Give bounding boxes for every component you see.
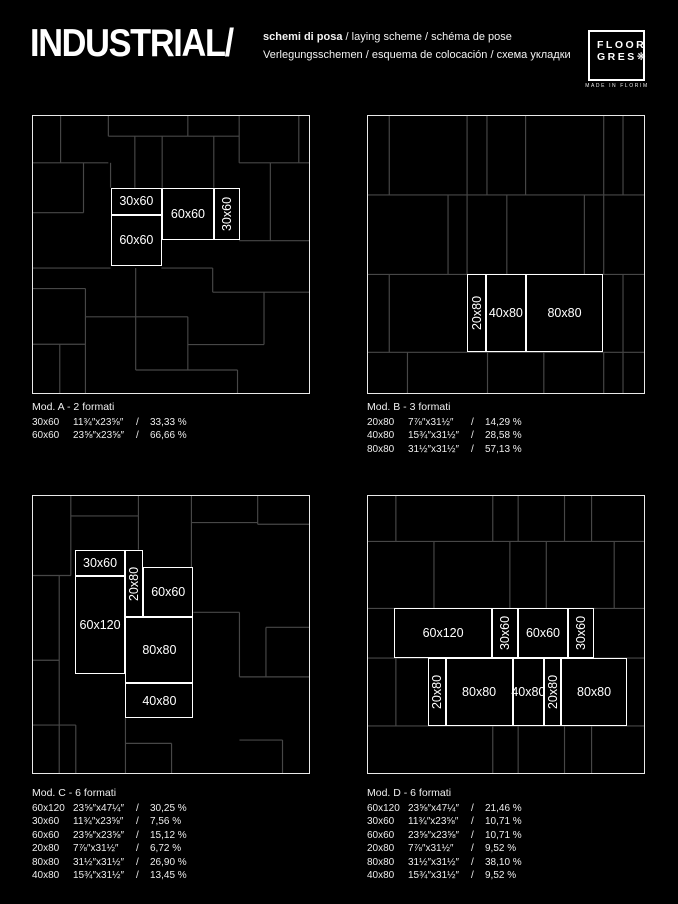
tile-label: 80x80 (462, 685, 496, 699)
format-size: 30x60 (367, 815, 408, 828)
logo-line2: GRES❋ (597, 52, 643, 64)
format-pct: 26,90 % (150, 856, 310, 869)
format-pct: 30,25 % (150, 802, 310, 815)
format-inches: 23⅝″x23⅝″ (73, 829, 136, 842)
tile-40x80: 40x80 (486, 274, 525, 352)
laying-scheme-diagram-d: 60x12030x6060x6030x6020x8080x8040x8020x8… (367, 495, 645, 774)
tile-20x80: 20x80 (428, 658, 445, 726)
format-row: 40x8015¾″x31½″/9,52 % (367, 869, 645, 882)
legend-mod-a: Mod. A - 2 formati30x6011¾″x23⅝″/33,33 %… (32, 401, 310, 443)
format-separator: / (136, 815, 150, 828)
page: INDUSTRIAL/ schemi di posa / laying sche… (0, 0, 678, 904)
format-separator: / (471, 802, 485, 815)
format-row: 80x8031½″x31½″/57,13 % (367, 443, 645, 456)
tile-label: 60x60 (151, 585, 185, 599)
format-size: 20x80 (367, 416, 408, 429)
tile-20x80: 20x80 (125, 550, 143, 618)
format-inches: 15¾″x31½″ (408, 869, 471, 882)
format-separator: / (136, 802, 150, 815)
format-pct: 38,10 % (485, 856, 645, 869)
format-row: 20x807⅞″x31½″/14,29 % (367, 416, 645, 429)
tile-20x80: 20x80 (467, 274, 486, 352)
subtitle: schemi di posa / laying scheme / schéma … (263, 28, 571, 64)
format-size: 80x80 (367, 856, 408, 869)
format-size: 40x80 (367, 869, 408, 882)
format-separator: / (136, 829, 150, 842)
format-size: 60x60 (32, 829, 73, 842)
format-row: 30x6011¾″x23⅝″/33,33 % (32, 416, 310, 429)
format-size: 40x80 (367, 429, 408, 442)
tile-label: 30x60 (220, 197, 234, 231)
legend-mod-b: Mod. B - 3 formati20x807⅞″x31½″/14,29 %4… (367, 401, 645, 456)
tile-label: 20x80 (546, 675, 560, 709)
format-pct: 33,33 % (150, 416, 310, 429)
format-inches: 31½″x31½″ (73, 856, 136, 869)
made-in-florim-label: MADE IN FLORIM (585, 83, 649, 89)
format-inches: 7⅞″x31½″ (408, 842, 471, 855)
format-row: 30x6011¾″x23⅝″/10,71 % (367, 815, 645, 828)
format-pct: 10,71 % (485, 829, 645, 842)
page-title: INDUSTRIAL/ (30, 22, 233, 66)
tile-40x80: 40x80 (125, 683, 193, 718)
tile-label: 80x80 (547, 306, 581, 320)
tile-80x80: 80x80 (446, 658, 513, 726)
format-inches: 23⅝″x23⅝″ (408, 829, 471, 842)
tile-label: 80x80 (142, 643, 176, 657)
format-inches: 15¾″x31½″ (408, 429, 471, 442)
tile-60x60: 60x60 (518, 608, 568, 658)
tile-label: 30x60 (574, 616, 588, 650)
format-separator: / (471, 829, 485, 842)
format-pct: 7,56 % (150, 815, 310, 828)
format-separator: / (136, 416, 150, 429)
format-pct: 9,52 % (485, 842, 645, 855)
format-pct: 9,52 % (485, 869, 645, 882)
tile-30x60: 30x60 (492, 608, 518, 658)
format-separator: / (136, 842, 150, 855)
tile-label: 60x60 (171, 207, 205, 221)
legend-title: Mod. C - 6 formati (32, 787, 310, 799)
format-size: 30x60 (32, 815, 73, 828)
format-size: 60x120 (32, 802, 73, 815)
logo-line1: FLOOR (597, 40, 643, 52)
panel-mod-b: 20x8040x8080x80Mod. B - 3 formati20x807⅞… (367, 115, 645, 456)
laying-scheme-diagram-a: 30x6060x6060x6030x60 (32, 115, 310, 394)
format-separator: / (136, 869, 150, 882)
floorgres-logo: FLOOR GRES❋ (588, 30, 645, 81)
format-size: 20x80 (32, 842, 73, 855)
format-inches: 31½″x31½″ (408, 443, 471, 456)
format-row: 80x8031½″x31½″/38,10 % (367, 856, 645, 869)
tile-label: 20x80 (430, 675, 444, 709)
tile-label: 40x80 (511, 685, 545, 699)
laying-scheme-diagram-c: 30x6020x8060x6060x12080x8040x80 (32, 495, 310, 774)
tile-label: 40x80 (489, 306, 523, 320)
format-row: 40x8015¾″x31½″/28,58 % (367, 429, 645, 442)
tile-40x80: 40x80 (513, 658, 544, 726)
format-inches: 7⅞″x31½″ (73, 842, 136, 855)
format-row: 40x8015¾″x31½″/13,45 % (32, 869, 310, 882)
format-inches: 15¾″x31½″ (73, 869, 136, 882)
tile-80x80: 80x80 (125, 617, 193, 683)
tile-80x80: 80x80 (526, 274, 604, 352)
faint-tiling-grid (33, 116, 309, 393)
format-inches: 23⅝″x47¼″ (73, 802, 136, 815)
format-row: 60x6023⅝″x23⅝″/66,66 % (32, 429, 310, 442)
format-inches: 11¾″x23⅝″ (408, 815, 471, 828)
format-row: 60x6023⅝″x23⅝″/10,71 % (367, 829, 645, 842)
format-size: 40x80 (32, 869, 73, 882)
format-row: 60x12023⅝″x47¼″/21,46 % (367, 802, 645, 815)
tile-label: 40x80 (142, 694, 176, 708)
tile-label: 60x120 (423, 626, 464, 640)
legend-mod-d: Mod. D - 6 formati60x12023⅝″x47¼″/21,46 … (367, 787, 645, 882)
format-inches: 23⅝″x47¼″ (408, 802, 471, 815)
tile-label: 30x60 (83, 556, 117, 570)
tile-60x60: 60x60 (111, 215, 163, 266)
tile-20x80: 20x80 (544, 658, 561, 726)
format-row: 80x8031½″x31½″/26,90 % (32, 856, 310, 869)
format-inches: 11¾″x23⅝″ (73, 416, 136, 429)
format-separator: / (136, 856, 150, 869)
format-pct: 6,72 % (150, 842, 310, 855)
tile-30x60: 30x60 (214, 188, 240, 240)
legend-title: Mod. A - 2 formati (32, 401, 310, 413)
tile-label: 80x80 (577, 685, 611, 699)
format-size: 60x60 (367, 829, 408, 842)
format-inches: 7⅞″x31½″ (408, 416, 471, 429)
tile-80x80: 80x80 (561, 658, 627, 726)
format-row: 60x12023⅝″x47¼″/30,25 % (32, 802, 310, 815)
tile-label: 30x60 (498, 616, 512, 650)
format-pct: 15,12 % (150, 829, 310, 842)
format-separator: / (471, 842, 485, 855)
format-inches: 11¾″x23⅝″ (73, 815, 136, 828)
tile-30x60: 30x60 (75, 550, 126, 577)
format-inches: 31½″x31½″ (408, 856, 471, 869)
format-row: 20x807⅞″x31½″/6,72 % (32, 842, 310, 855)
format-size: 30x60 (32, 416, 73, 429)
format-pct: 10,71 % (485, 815, 645, 828)
tile-60x120: 60x120 (75, 576, 126, 674)
tile-label: 20x80 (127, 566, 141, 600)
format-separator: / (471, 429, 485, 442)
tile-30x60: 30x60 (111, 188, 163, 215)
format-pct: 14,29 % (485, 416, 645, 429)
format-size: 60x60 (32, 429, 73, 442)
format-row: 20x807⅞″x31½″/9,52 % (367, 842, 645, 855)
format-size: 60x120 (367, 802, 408, 815)
panel-mod-a: 30x6060x6060x6030x60Mod. A - 2 formati30… (32, 115, 310, 443)
subtitle-line1-rest: / laying scheme / schéma de pose (342, 31, 511, 43)
format-separator: / (136, 429, 150, 442)
legend-title: Mod. B - 3 formati (367, 401, 645, 413)
subtitle-line1-bold: schemi di posa (263, 31, 342, 43)
tile-60x60: 60x60 (143, 567, 193, 617)
format-pct: 66,66 % (150, 429, 310, 442)
subtitle-line1: schemi di posa / laying scheme / schéma … (263, 28, 571, 46)
format-pct: 28,58 % (485, 429, 645, 442)
format-separator: / (471, 416, 485, 429)
laying-scheme-diagram-b: 20x8040x8080x80 (367, 115, 645, 394)
format-separator: / (471, 443, 485, 456)
format-row: 30x6011¾″x23⅝″/7,56 % (32, 815, 310, 828)
tile-30x60: 30x60 (568, 608, 594, 658)
format-pct: 57,13 % (485, 443, 645, 456)
tile-label: 60x60 (119, 233, 153, 247)
panel-mod-c: 30x6020x8060x6060x12080x8040x80Mod. C - … (32, 495, 310, 882)
format-size: 20x80 (367, 842, 408, 855)
panel-mod-d: 60x12030x6060x6030x6020x8080x8040x8020x8… (367, 495, 645, 882)
tile-60x120: 60x120 (394, 608, 492, 658)
tile-label: 30x60 (119, 194, 153, 208)
format-pct: 21,46 % (485, 802, 645, 815)
legend-title: Mod. D - 6 formati (367, 787, 645, 799)
format-separator: / (471, 856, 485, 869)
format-separator: / (471, 815, 485, 828)
tile-label: 60x120 (80, 618, 121, 632)
tile-60x60: 60x60 (162, 188, 214, 240)
format-pct: 13,45 % (150, 869, 310, 882)
tile-label: 20x80 (470, 296, 484, 330)
format-size: 80x80 (367, 443, 408, 456)
format-separator: / (471, 869, 485, 882)
format-inches: 23⅝″x23⅝″ (73, 429, 136, 442)
legend-mod-c: Mod. C - 6 formati60x12023⅝″x47¼″/30,25 … (32, 787, 310, 882)
format-row: 60x6023⅝″x23⅝″/15,12 % (32, 829, 310, 842)
format-size: 80x80 (32, 856, 73, 869)
subtitle-line2: Verlegungsschemen / esquema de colocació… (263, 46, 571, 64)
tile-label: 60x60 (526, 626, 560, 640)
